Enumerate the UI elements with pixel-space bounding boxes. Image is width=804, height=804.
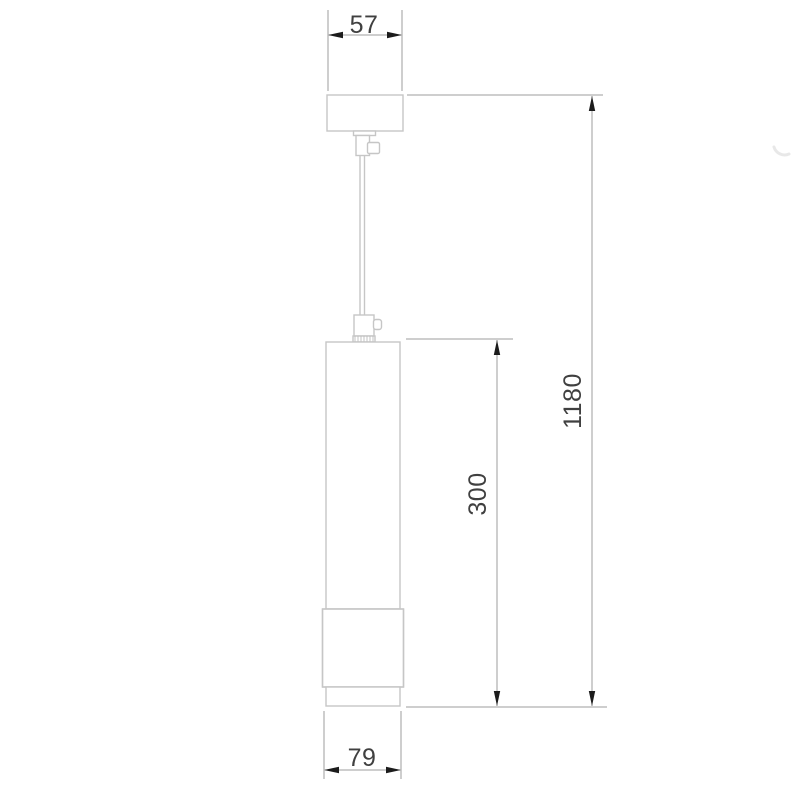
dimension-body-width: 79: [324, 711, 401, 779]
connector-side-tab: [374, 320, 382, 330]
arrow-right-icon: [386, 767, 401, 773]
knurled-ring: [323, 609, 404, 687]
technical-drawing: 57 1180 300 79: [0, 0, 804, 804]
arrow-right-icon: [387, 32, 402, 38]
arrow-left-icon: [324, 767, 339, 773]
dimension-label-canopy-width: 57: [350, 11, 379, 39]
lamp-body-cylinder: [326, 342, 400, 609]
cord-grip-knob: [368, 143, 380, 154]
dimension-label-body-height: 300: [464, 472, 492, 515]
dimension-label-overall-height: 1180: [559, 373, 587, 429]
dimension-body-height: 300: [406, 339, 513, 706]
strain-relief-ribs: [355, 336, 373, 342]
arrow-left-icon: [328, 32, 343, 38]
arrow-up-icon: [589, 96, 595, 111]
dimension-overall-height: 1180: [407, 95, 603, 706]
ceiling-canopy: [327, 95, 403, 131]
bottom-trim: [326, 687, 400, 706]
arrow-down-icon: [589, 691, 595, 706]
dimension-canopy-width: 57: [328, 10, 402, 91]
arrow-down-icon: [494, 691, 500, 706]
arrow-up-icon: [494, 340, 500, 355]
dimension-label-body-width: 79: [348, 744, 377, 772]
drawing-canvas: 57 1180 300 79: [0, 0, 804, 804]
pendant-lamp-figure: [323, 95, 404, 706]
cord-connector: [354, 315, 374, 336]
watermark-arc: [774, 147, 789, 155]
